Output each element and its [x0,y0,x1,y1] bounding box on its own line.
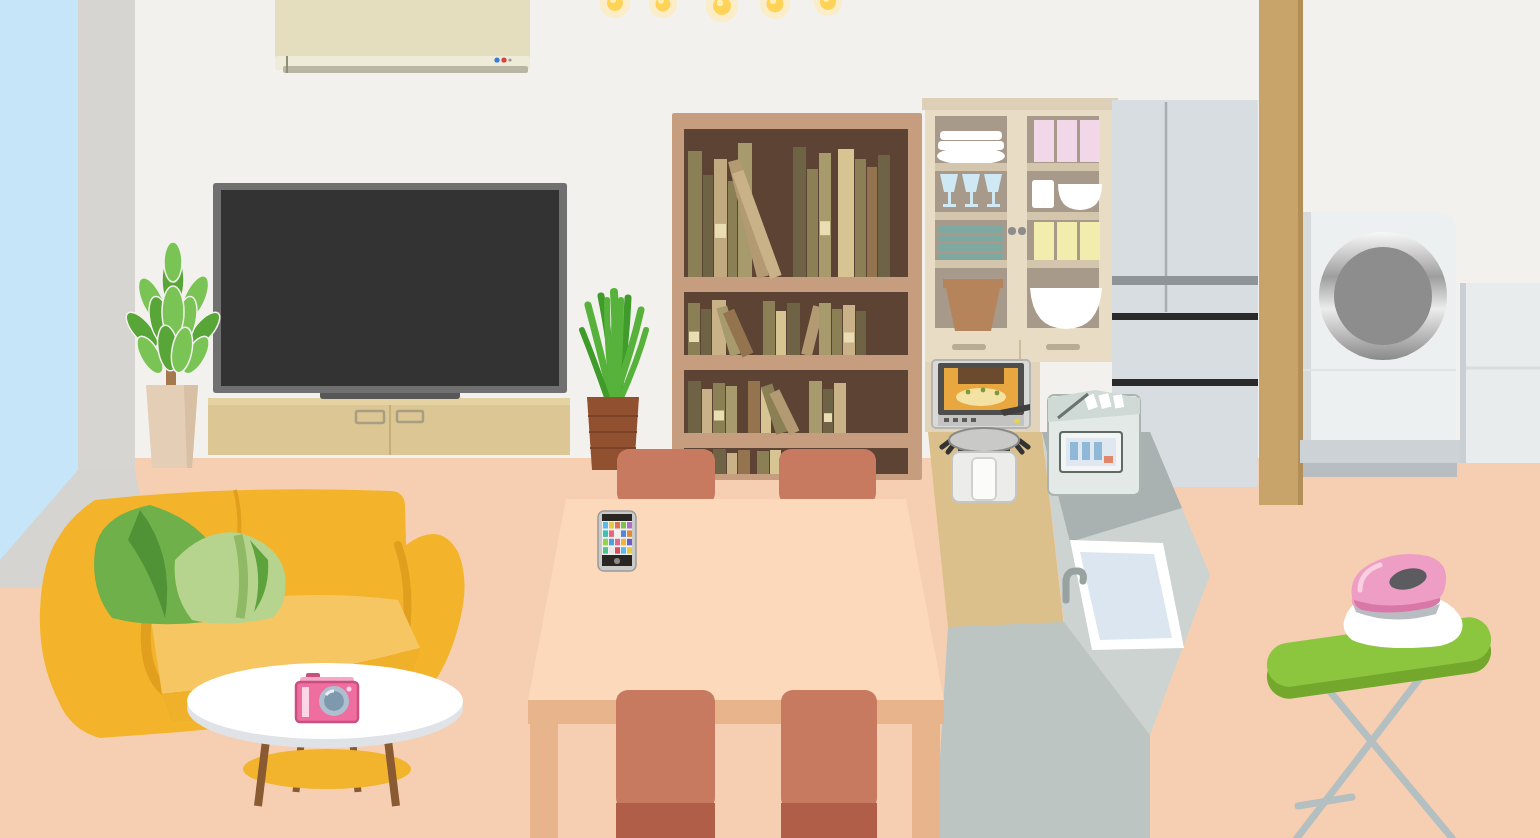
book[interactable] [703,175,713,277]
app-icon [615,539,620,546]
ac-led-red [501,57,506,62]
app-icon [603,522,608,529]
washer-base-shadow [1303,463,1457,477]
book[interactable] [713,383,725,433]
book-label [689,332,699,342]
app-icon [609,522,614,529]
wall-pillar [1259,0,1303,505]
white-cup-and-bowl [1032,180,1102,210]
tv-screen [221,190,559,386]
book[interactable] [878,155,890,277]
plate-stack [937,131,1005,165]
app-icon [627,547,632,554]
app-icon [621,547,626,554]
book[interactable] [728,181,737,277]
book[interactable] [688,151,702,277]
laundry-cabinet[interactable] [1460,283,1540,463]
bookshelf[interactable] [672,113,922,480]
app-icon [621,522,626,529]
drawer-handle [1046,344,1080,350]
dining-chair-front-right[interactable] [781,690,877,838]
app-icon [603,539,608,546]
table-apron [528,700,944,724]
app-icon [603,530,608,537]
dishwasher-accent [1104,456,1113,463]
app-icon [627,539,632,546]
book[interactable] [843,305,855,355]
smartphone[interactable] [598,511,636,571]
app-icon [621,530,626,537]
book-label [714,411,724,421]
book[interactable] [688,303,700,355]
table-leg [530,724,558,838]
fridge-handle-bar[interactable] [1112,276,1258,285]
book[interactable] [867,167,877,277]
book[interactable] [809,381,822,433]
dishwasher[interactable] [1048,390,1140,495]
camera[interactable] [296,673,358,722]
app-icon [627,522,632,529]
app-icon [609,539,614,546]
cabinet-knob[interactable] [1018,227,1026,235]
book[interactable] [807,169,818,277]
ac-louver [283,66,528,73]
dining-chair-front-left[interactable] [616,690,715,838]
television[interactable] [213,183,567,399]
book-label [824,413,832,422]
table-top [528,499,944,700]
tv-stand-divider [389,405,391,455]
book[interactable] [787,303,800,355]
tv-stand-top [208,398,570,405]
book[interactable] [819,153,831,277]
curtain-panel [78,0,135,470]
ac-led-blue [494,57,499,62]
book-label [715,224,726,238]
cabinet-top [922,98,1118,110]
shelf-board [684,277,908,292]
book[interactable] [855,159,866,277]
room-scene [0,0,1540,838]
laundry-cabinet-body [1460,283,1540,463]
air-conditioner[interactable] [275,0,530,73]
dining-chair-back-left[interactable] [617,449,715,505]
dishwasher-dishes [1084,393,1124,410]
washer-base [1300,440,1460,463]
fridge-drawer-line [1112,313,1258,320]
ac-led-gray [508,58,511,61]
book[interactable] [701,309,711,355]
book[interactable] [702,389,712,433]
book[interactable] [748,381,760,433]
cooker-lid[interactable] [949,428,1019,452]
tv-stand[interactable] [208,398,570,455]
book[interactable] [832,309,842,355]
phone-home-button[interactable] [614,558,620,564]
dining-chair-back-right[interactable] [779,449,876,505]
book[interactable] [856,311,866,355]
book[interactable] [763,301,775,355]
cabinet-knob[interactable] [1008,227,1016,235]
book[interactable] [688,381,701,433]
camera-flash [347,687,352,692]
laundry-cabinet-edge [1460,283,1466,463]
washing-machine[interactable] [1300,212,1460,477]
camera-stripe [302,687,309,717]
app-icon [609,530,614,537]
app-icon [627,530,632,537]
washer-edge [1303,212,1311,463]
pink-cups [1034,120,1100,162]
toaster-oven[interactable] [932,360,1030,428]
fridge-drawer-line [1112,379,1258,386]
chair-seat [781,803,877,838]
dishwasher-display-bars [1070,442,1102,460]
book[interactable] [738,450,750,474]
app-icon [615,547,620,554]
oven-food-top [958,368,1004,384]
book-label [844,333,854,343]
yellow-cups [1034,222,1100,260]
book[interactable] [838,149,854,277]
washer-drum [1334,247,1432,345]
wine-glasses [940,174,1002,207]
book[interactable] [793,147,806,277]
app-icon [615,522,620,529]
book[interactable] [726,386,737,433]
oven-dot [1014,418,1019,423]
table-leg [912,724,940,838]
app-icon [615,530,620,537]
cabinet-drawers[interactable] [927,340,1113,362]
ac-notch [286,56,288,73]
book[interactable] [823,389,833,433]
ac-body [275,0,530,58]
cooker-front-handle[interactable] [972,458,996,500]
oven-control-strip[interactable] [938,415,1024,426]
book[interactable] [714,159,727,277]
rice-cooker[interactable] [942,428,1028,502]
book-label [820,221,830,235]
book[interactable] [834,383,846,433]
app-icon [621,539,626,546]
book[interactable] [757,451,769,474]
drawer-handle [952,344,986,350]
book[interactable] [819,303,831,355]
shelf-board [684,355,908,370]
book[interactable] [727,453,737,474]
phone-bezel-top [602,514,632,522]
shelf-board [684,433,908,448]
app-icon [609,547,614,554]
book[interactable] [776,311,786,355]
chair-seat [616,803,715,838]
app-icon [603,547,608,554]
